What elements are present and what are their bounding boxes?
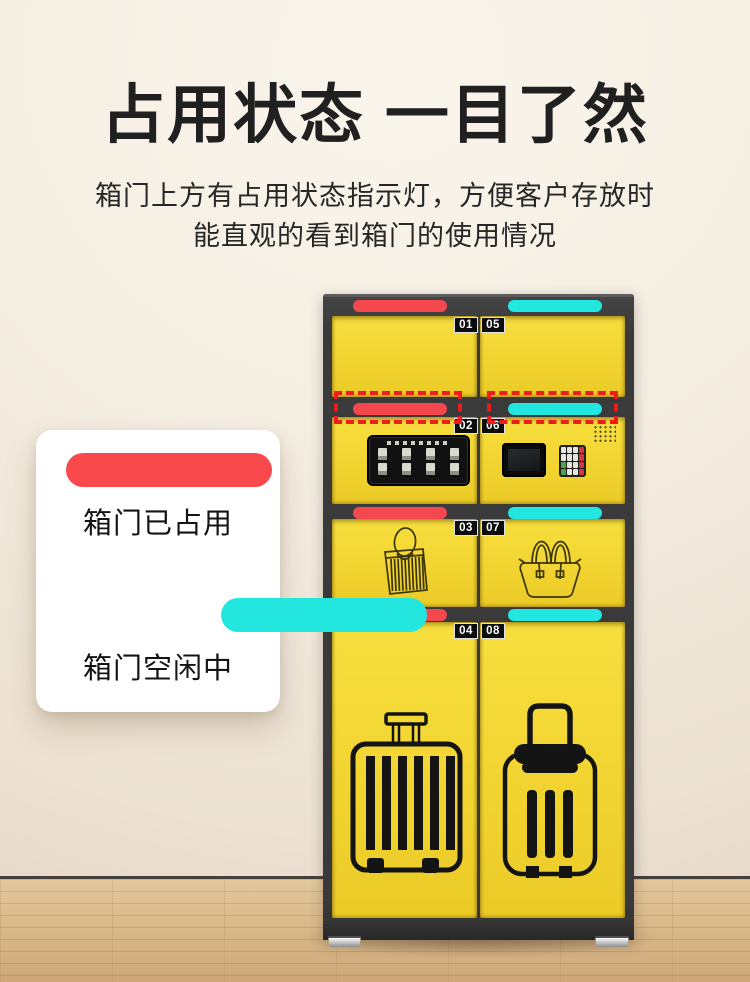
subtitle-line-2: 能直观的看到箱门的使用情况	[0, 214, 750, 253]
instruction-step-icon	[450, 463, 459, 475]
row1-occupied-indicator	[353, 300, 447, 312]
page: 占用状态 一目了然 箱门上方有占用状态指示灯，方便客户存放时 能直观的看到箱门的…	[0, 0, 750, 982]
subtitle-line-1: 箱门上方有占用状态指示灯，方便客户存放时	[0, 174, 750, 213]
locker-foot-right	[595, 936, 629, 947]
suitcase-icon	[502, 702, 598, 880]
display-screen	[502, 443, 546, 477]
instructions-title-row	[387, 441, 451, 445]
instruction-step-icon	[426, 463, 435, 475]
vacant-label: 箱门空闲中	[36, 645, 280, 687]
vacant-indicator-pill	[221, 598, 427, 632]
door-number-badge: 07	[481, 520, 505, 536]
speaker-grille-icon	[593, 425, 616, 442]
instruction-step-icon	[402, 463, 411, 475]
door-number-badge: 04	[454, 623, 478, 639]
locker-base	[323, 918, 634, 940]
door-number-badge: 03	[454, 520, 478, 536]
usage-instructions-panel	[367, 435, 470, 486]
occupied-indicator-pill	[66, 453, 272, 487]
row3-vacant-indicator	[508, 507, 602, 519]
page-title: 占用状态 一目了然	[0, 64, 750, 156]
keypad	[559, 445, 586, 477]
legend-card: 箱门已占用 箱门空闲中	[36, 430, 280, 712]
handbag-icon	[515, 527, 585, 600]
trolley-suitcase-icon	[350, 712, 463, 878]
door-number-badge: 08	[481, 623, 505, 639]
occupied-label: 箱门已占用	[36, 500, 280, 542]
screen-glass	[508, 449, 540, 471]
instruction-step-icon	[378, 448, 387, 460]
instruction-step-icon	[450, 448, 459, 460]
highlight-box-vacant-indicator	[487, 391, 618, 424]
row4-vacant-indicator	[508, 609, 602, 621]
highlight-box-occupied-indicator	[334, 391, 462, 424]
tote-bag-icon	[378, 527, 432, 597]
locker-foot-left	[328, 936, 361, 947]
door-number-badge: 05	[481, 317, 505, 333]
instruction-step-icon	[378, 463, 387, 475]
row3-occupied-indicator	[353, 507, 447, 519]
instruction-step-icon	[426, 448, 435, 460]
instruction-step-icon	[402, 448, 411, 460]
door-number-badge: 01	[454, 317, 478, 333]
row1-vacant-indicator	[508, 300, 602, 312]
